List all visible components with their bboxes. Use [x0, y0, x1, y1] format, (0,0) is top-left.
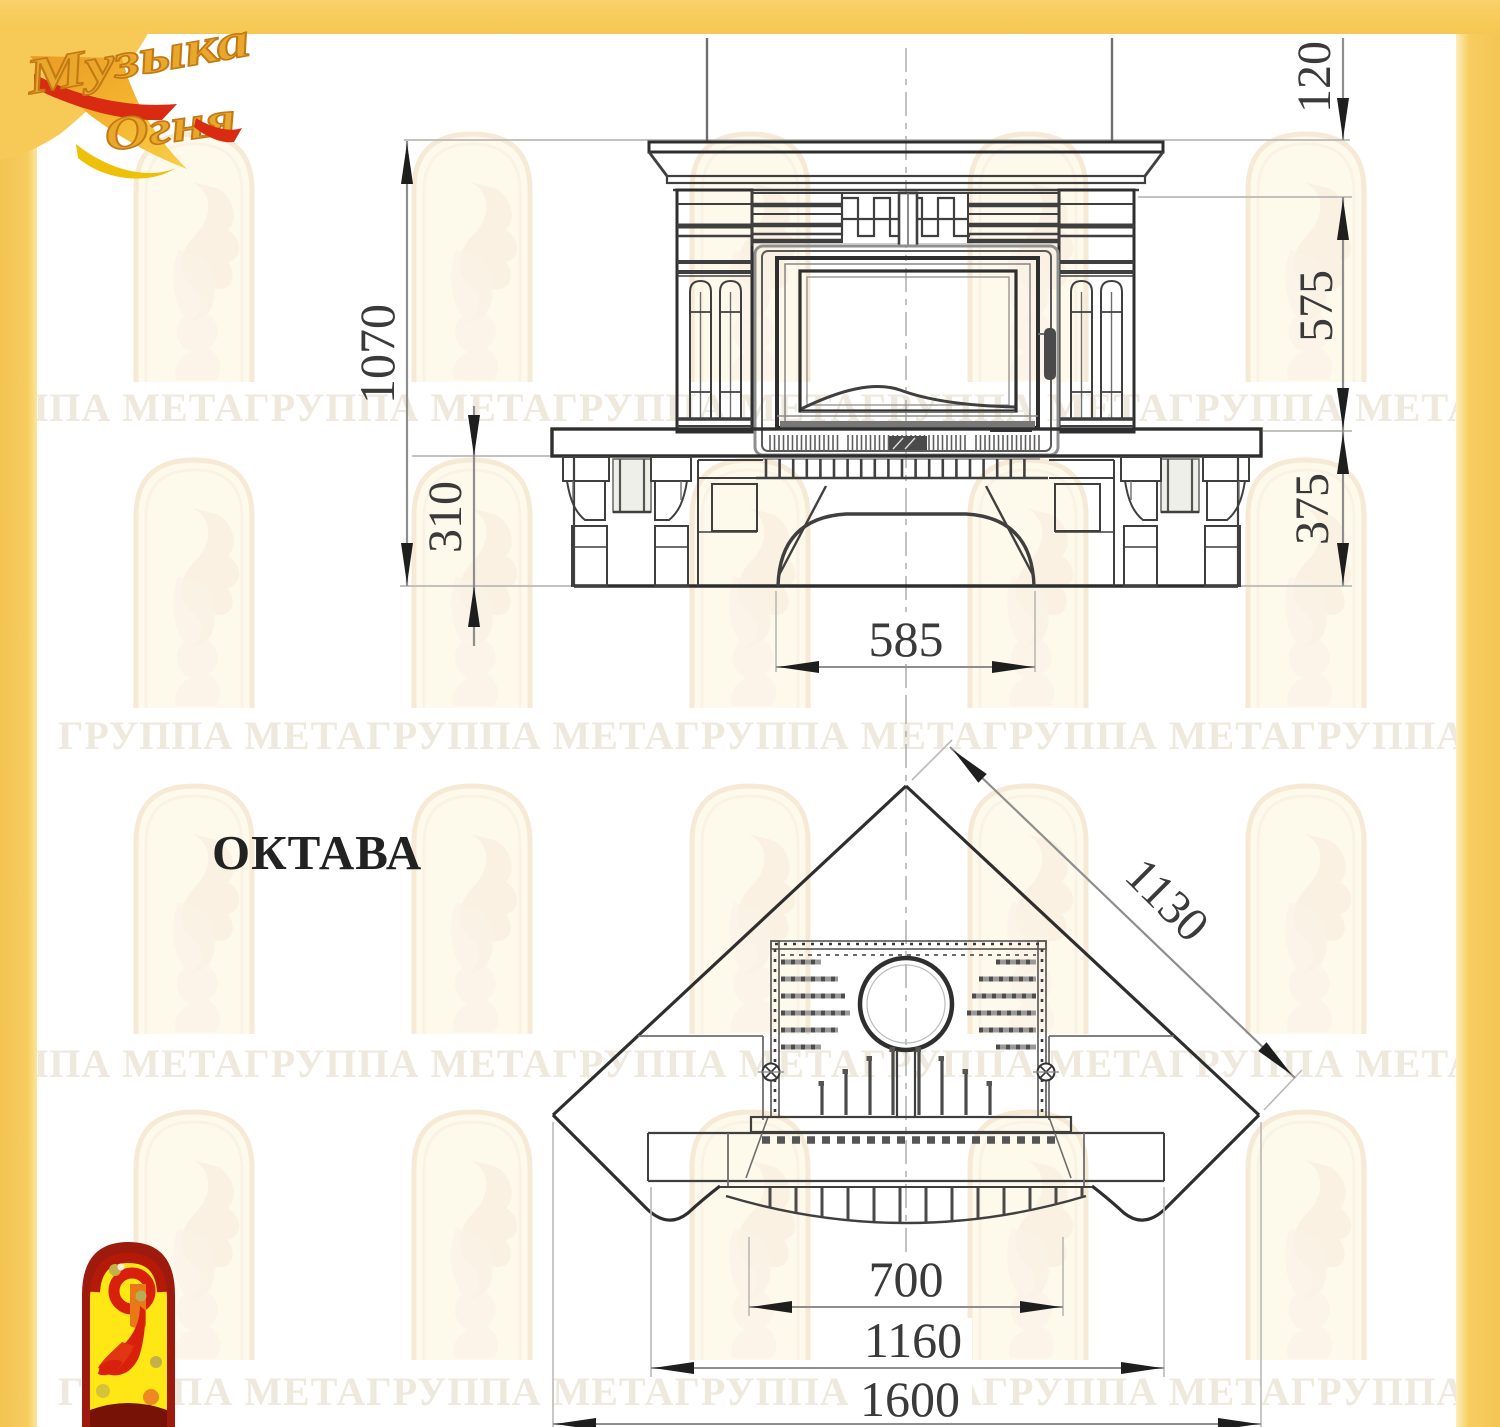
- svg-text:585: 585: [869, 611, 944, 667]
- svg-text:120: 120: [1288, 41, 1341, 113]
- svg-text:ГРУППА МЕТАГРУППА МЕТАГРУППА М: ГРУППА МЕТАГРУППА МЕТАГРУППА МЕТАГРУППА …: [58, 1369, 1500, 1414]
- svg-text:310: 310: [419, 481, 472, 553]
- svg-text:700: 700: [869, 1251, 944, 1307]
- svg-text:575: 575: [1290, 270, 1343, 342]
- svg-text:ОКТАВА: ОКТАВА: [212, 825, 422, 880]
- svg-text:1070: 1070: [349, 304, 405, 404]
- svg-text:1130: 1130: [1115, 848, 1219, 952]
- svg-text:1600: 1600: [860, 1371, 960, 1427]
- svg-text:ГРУППА МЕТАГРУППА МЕТАГРУППА М: ГРУППА МЕТАГРУППА МЕТАГРУППА МЕТАГРУППА …: [0, 1041, 1476, 1086]
- svg-text:ГРУППА МЕТАГРУППА МЕТАГРУППА М: ГРУППА МЕТАГРУППА МЕТАГРУППА МЕТАГРУППА …: [58, 713, 1500, 758]
- svg-text:375: 375: [1286, 473, 1339, 545]
- svg-text:1160: 1160: [864, 1312, 962, 1368]
